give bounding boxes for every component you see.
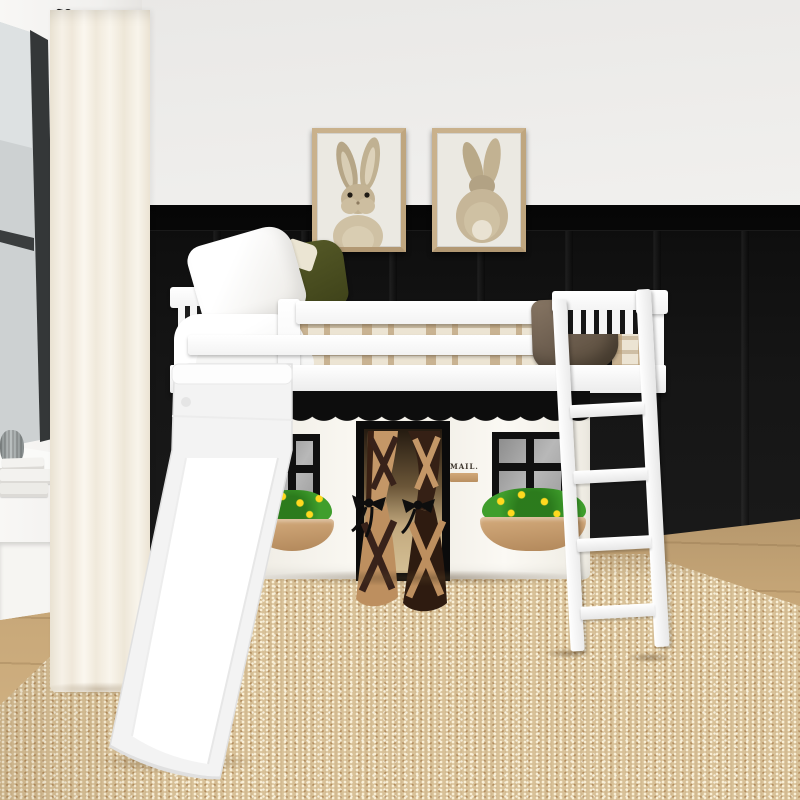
- ladder: [552, 289, 671, 658]
- bunny-print-back: [432, 128, 526, 252]
- bunny-print-front: [312, 128, 406, 252]
- slide: [46, 354, 320, 780]
- ladder-rung: [577, 535, 652, 552]
- door-curtains: [338, 419, 470, 627]
- mail-sign-text: MAIL.: [450, 463, 488, 471]
- guard-rail-top: [296, 301, 564, 324]
- bunny-front-illustration: [317, 133, 401, 247]
- bunny-back-illustration: [437, 133, 521, 247]
- wall-batten: [742, 231, 749, 576]
- room-scene: MAIL.: [0, 0, 800, 800]
- ladder-rung: [580, 603, 655, 620]
- guard-rail-bottom: [188, 335, 564, 355]
- book: [0, 483, 48, 497]
- mail-slot: [450, 473, 478, 482]
- ladder-rung: [570, 401, 645, 418]
- ladder-rung: [573, 467, 648, 484]
- window-mullion: [499, 463, 561, 471]
- mail-sign: MAIL.: [450, 463, 488, 489]
